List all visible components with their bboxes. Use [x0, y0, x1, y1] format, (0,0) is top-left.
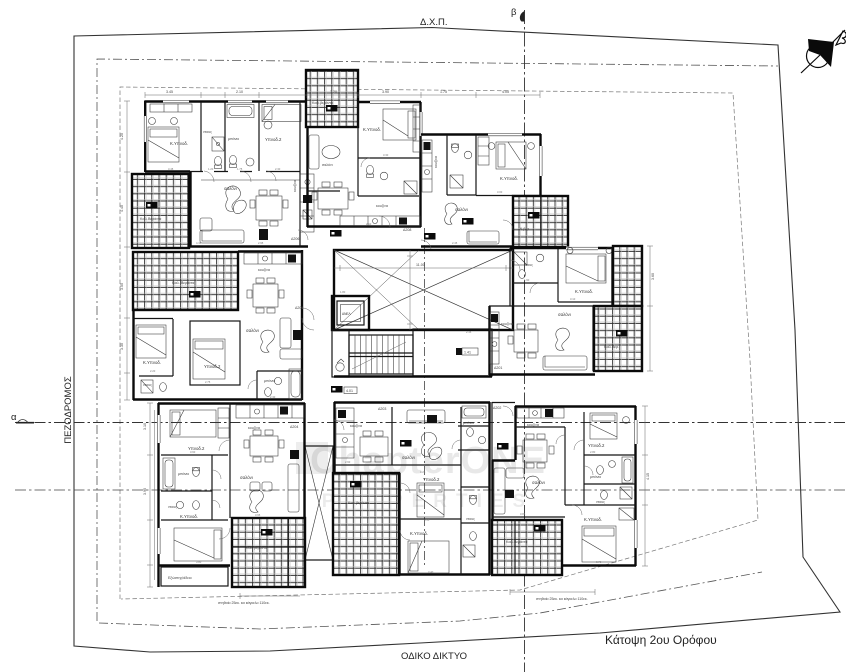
svg-text:Κ.Υπνοδ.: Κ.Υπνοδ. — [170, 141, 188, 146]
svg-text:Κοιλ.βεράντα: Κοιλ.βεράντα — [348, 501, 369, 505]
svg-text:Κ.βερ.: Κ.βερ. — [520, 227, 530, 231]
svg-text:Κ.Υπνοδ.: Κ.Υπνοδ. — [410, 531, 428, 536]
svg-text:1.75: 1.75 — [237, 167, 243, 171]
svg-text:Κ.Υπνοδ.: Κ.Υπνοδ. — [575, 289, 593, 294]
svg-text:στηθαίο 25εκ. κα κάγκελο 110εκ: στηθαίο 25εκ. κα κάγκελο 110εκ. — [536, 597, 588, 601]
svg-text:4.01: 4.01 — [346, 389, 353, 393]
svg-text:1.75: 1.75 — [440, 90, 447, 94]
svg-text:ΠΕΖΟΔΡΟΜΟΣ: ΠΕΖΟΔΡΟΜΟΣ — [63, 376, 74, 444]
svg-text:Κάτοψη 2ου Ορόφου: Κάτοψη 2ου Ορόφου — [605, 633, 717, 647]
svg-text:3.10: 3.10 — [570, 297, 576, 301]
svg-text:μπάνιο: μπάνιο — [463, 421, 474, 425]
svg-text:3.25: 3.25 — [420, 470, 426, 474]
svg-text:κουζίνα: κουζίνα — [527, 423, 539, 427]
svg-text:σαλόνι: σαλόνι — [240, 475, 253, 480]
svg-text:1.90: 1.90 — [524, 278, 530, 282]
svg-text:σαλόνι: σαλόνι — [224, 186, 237, 191]
svg-text:Κ.Υπνοδ.: Κ.Υπνοδ. — [363, 127, 381, 132]
svg-text:Κ.Υπνοδ.: Κ.Υπνοδ. — [500, 176, 518, 181]
svg-text:Κοιλ.Βερ.: Κοιλ.Βερ. — [604, 345, 619, 349]
svg-text:ντους: ντους — [203, 130, 212, 134]
svg-text:ντους: ντους — [466, 517, 475, 521]
svg-text:2.30: 2.30 — [270, 395, 276, 399]
svg-text:Κ.Υπνοδ.: Κ.Υπνοδ. — [584, 517, 602, 522]
svg-text:3.15: 3.15 — [424, 518, 430, 522]
svg-text:3.10: 3.10 — [143, 423, 147, 430]
svg-text:κουζίνα: κουζίνα — [376, 204, 388, 208]
svg-text:Δ.Χ.Π.: Δ.Χ.Π. — [420, 17, 447, 28]
svg-text:σαλόνι: σαλόνι — [402, 455, 415, 460]
svg-text:μπάνιο: μπάνιο — [228, 137, 239, 141]
svg-text:ντους: ντους — [596, 500, 605, 504]
svg-text:Υπνοδ.2: Υπνοδ.2 — [204, 364, 221, 369]
svg-text:σαλόνι: σαλόνι — [558, 312, 571, 317]
svg-text:1.80: 1.80 — [340, 290, 346, 294]
svg-text:κουζίνα: κουζίνα — [501, 322, 513, 326]
svg-text:2.60: 2.60 — [345, 460, 351, 464]
svg-text:Κ.Υπνοδ.: Κ.Υπνοδ. — [143, 360, 161, 365]
svg-text:Δ204: Δ204 — [290, 425, 298, 429]
svg-text:Κοιλ. Βεράντα: Κοιλ. Βεράντα — [172, 281, 194, 285]
svg-text:ντους: ντους — [168, 505, 177, 509]
svg-text:Κοιλ.βεράντα: Κοιλ.βεράντα — [312, 101, 333, 105]
svg-text:3.95: 3.95 — [255, 513, 261, 517]
svg-text:4.20: 4.20 — [120, 133, 124, 140]
svg-text:Κ.Υπνοδ.: Κ.Υπνοδ. — [180, 514, 198, 519]
svg-text:Εξώστης/άδειο: Εξώστης/άδειο — [168, 576, 192, 580]
svg-text:Κοιλ.Βεράντα: Κοιλ.Βεράντα — [506, 540, 527, 544]
svg-text:κουζίνα: κουζίνα — [293, 180, 297, 192]
svg-text:4.30: 4.30 — [196, 241, 202, 245]
svg-text:2.30: 2.30 — [275, 167, 281, 171]
svg-text:1.20: 1.20 — [208, 167, 214, 171]
svg-text:2.35: 2.35 — [466, 330, 472, 334]
svg-text:3.55: 3.55 — [120, 283, 124, 290]
svg-text:Υπνοδ.2: Υπνοδ.2 — [423, 477, 440, 482]
svg-text:β: β — [511, 7, 517, 18]
svg-text:3.60: 3.60 — [190, 450, 196, 454]
svg-text:κουζίνα: κουζίνα — [248, 426, 260, 430]
svg-text:3.70: 3.70 — [596, 560, 602, 564]
svg-text:κουζίνα: κουζίνα — [350, 424, 362, 428]
svg-text:ντους: ντους — [143, 383, 152, 387]
svg-text:ντους: ντους — [524, 263, 533, 267]
svg-text:α: α — [11, 412, 17, 423]
svg-text:μπάνιο: μπάνιο — [590, 475, 601, 479]
svg-text:ΑΝΕΛ: ΑΝΕΛ — [342, 312, 352, 316]
svg-text:3.90: 3.90 — [382, 90, 389, 94]
svg-text:2.10: 2.10 — [236, 90, 243, 94]
svg-text:2.45: 2.45 — [452, 241, 458, 245]
svg-text:4.15: 4.15 — [646, 473, 650, 480]
svg-text:1.41: 1.41 — [464, 351, 471, 355]
svg-text:2.10: 2.10 — [366, 222, 372, 226]
svg-text:3.85: 3.85 — [520, 512, 526, 516]
svg-text:3.60: 3.60 — [651, 273, 655, 280]
svg-text:σαλόνι: σαλόνι — [532, 480, 545, 485]
svg-text:σαλόνι: σαλόνι — [322, 163, 333, 167]
svg-text:3.45: 3.45 — [168, 167, 174, 171]
svg-text:4.40: 4.40 — [120, 205, 124, 212]
svg-text:3.40: 3.40 — [428, 570, 434, 574]
svg-text:κουζίνα: κουζίνα — [258, 268, 270, 272]
svg-text:2.75: 2.75 — [205, 380, 211, 384]
svg-text:μπάνιο: μπάνιο — [178, 472, 189, 476]
svg-text:Δ203: Δ203 — [378, 407, 386, 411]
svg-text:ΟΔΙΚΟ ΔΙΚΤΥΟ: ΟΔΙΚΟ ΔΙΚΤΥΟ — [401, 651, 467, 662]
svg-text:Κοιλ.βεράντα: Κοιλ.βεράντα — [246, 546, 267, 550]
svg-text:Δ208: Δ208 — [403, 228, 411, 232]
svg-text:σαλόνι: σαλόνι — [455, 207, 468, 212]
svg-text:4.05: 4.05 — [502, 90, 509, 94]
svg-text:2.80: 2.80 — [590, 450, 596, 454]
svg-text:3.30: 3.30 — [120, 343, 124, 350]
svg-text:Κοιλ.Βεράντα: Κοιλ.Βεράντα — [140, 217, 161, 221]
svg-text:Υπνοδ.2: Υπνοδ.2 — [588, 443, 605, 448]
svg-text:Δ205: Δ205 — [295, 306, 303, 310]
svg-text:Υπνοδ.2: Υπνοδ.2 — [265, 137, 282, 142]
svg-text:3.20: 3.20 — [330, 90, 337, 94]
svg-text:2.20: 2.20 — [150, 369, 156, 373]
svg-text:Δ206: Δ206 — [291, 237, 299, 241]
svg-text:Δ201: Δ201 — [494, 366, 502, 370]
svg-text:3.95: 3.95 — [143, 488, 147, 495]
svg-text:3.80: 3.80 — [196, 560, 202, 564]
svg-text:3.45: 3.45 — [166, 90, 173, 94]
svg-text:μπάνιο: μπάνιο — [264, 379, 275, 383]
svg-text:κουζίνα: κουζίνα — [434, 156, 438, 168]
svg-text:3.00: 3.00 — [497, 190, 503, 194]
svg-text:3.30: 3.30 — [383, 153, 389, 157]
svg-text:σαλόνι: σαλόνι — [246, 328, 259, 333]
svg-text:11.00: 11.00 — [416, 263, 425, 267]
svg-text:Δ202: Δ202 — [493, 406, 501, 410]
svg-text:2.95: 2.95 — [258, 241, 264, 245]
svg-text:στηθαίο 25εκ. κα κάγκελο 110εκ: στηθαίο 25εκ. κα κάγκελο 110εκ. — [218, 601, 270, 605]
